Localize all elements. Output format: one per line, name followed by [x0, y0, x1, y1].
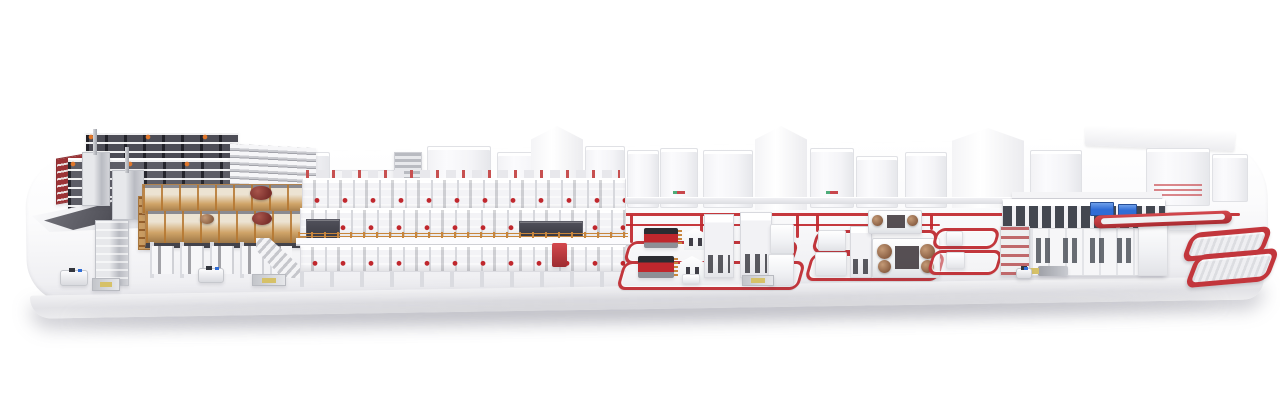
small-box [682, 274, 700, 284]
paper-roll-2 [252, 212, 272, 225]
red-end-cabinet [552, 243, 567, 267]
cell-riser-line [930, 215, 933, 230]
back-module-row [302, 178, 626, 211]
mini-agv [1016, 268, 1032, 279]
white-tower-1 [704, 214, 734, 278]
flexo-printer-2 [638, 256, 674, 278]
buffer-box-1 [946, 231, 963, 246]
forklift [1038, 266, 1068, 276]
roll-stand-top-line [306, 170, 620, 178]
cell1-right-unit-1 [770, 224, 794, 254]
roof-canopy [1012, 192, 1162, 199]
paper-roll-1 [250, 186, 272, 200]
display-screen-1 [1090, 202, 1114, 216]
cell2-small-unit-b [815, 252, 847, 276]
agv-shuttle [60, 270, 88, 286]
production-line-render [0, 0, 1280, 405]
transfer-loop-1 [931, 228, 1001, 249]
paper-roll-3 [200, 214, 214, 224]
cell2-small-unit-a [818, 230, 846, 251]
tooling-roll [907, 215, 918, 226]
flexo-printer-1 [644, 228, 678, 248]
pallet-station [92, 278, 120, 291]
tooling-roll [877, 244, 892, 259]
pallet-station-2 [252, 274, 286, 286]
splicer-tower-a [82, 152, 110, 206]
tooling-roll [872, 215, 883, 226]
bg-cabinet [1212, 154, 1248, 202]
agv-shuttle-2 [198, 268, 224, 283]
die-cutter-small [868, 210, 922, 234]
transfer-loop-2 [926, 250, 1003, 275]
tooling-roll [878, 260, 891, 273]
cell-riser-line [630, 215, 633, 243]
elevator-tower [95, 220, 129, 286]
buffer-box-2 [946, 252, 965, 269]
pallet-load [742, 275, 774, 286]
front-module-row [300, 245, 626, 272]
cell-riser-line [796, 215, 799, 238]
